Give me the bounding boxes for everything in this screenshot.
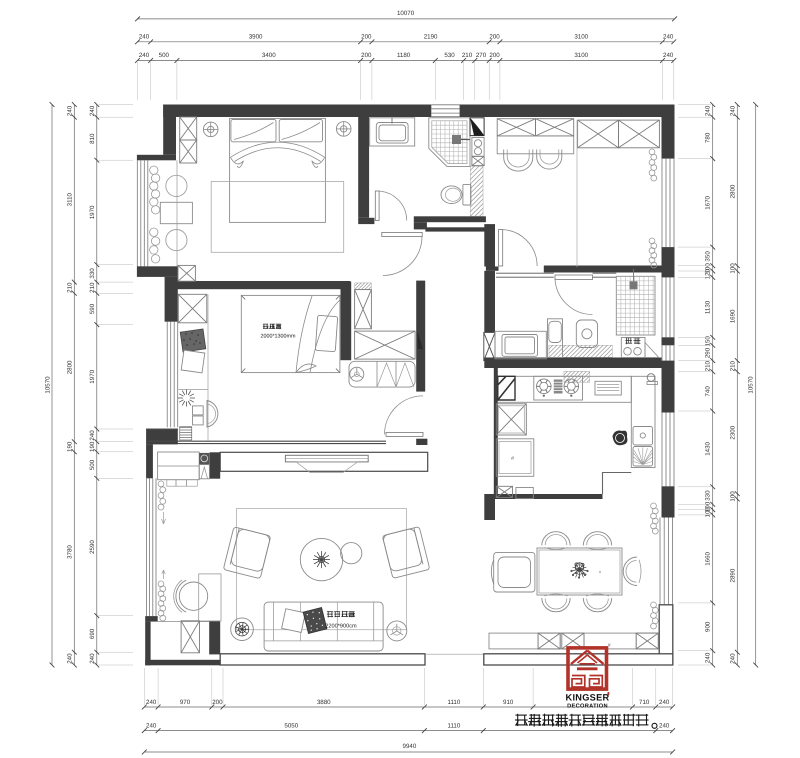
svg-text:330: 330 [89,268,96,279]
svg-text:240: 240 [705,652,712,663]
svg-text:500: 500 [89,459,96,470]
svg-text:1970: 1970 [89,205,96,219]
svg-text:2800: 2800 [66,360,73,374]
svg-text:200: 200 [361,34,372,41]
svg-text:240: 240 [139,34,150,41]
svg-text:240: 240 [146,723,157,730]
svg-text:#: # [608,643,611,649]
svg-text:240: 240 [729,105,736,116]
svg-text:530: 530 [444,52,455,59]
svg-text:3100: 3100 [574,34,588,41]
svg-text:200: 200 [489,34,500,41]
svg-text:190: 190 [66,441,73,452]
svg-text:200: 200 [212,699,223,706]
svg-text:240: 240 [663,52,674,59]
svg-text:3100: 3100 [574,52,588,59]
svg-text:2190: 2190 [424,34,438,41]
svg-text:3900: 3900 [249,34,263,41]
svg-text:1130: 1130 [705,300,712,314]
svg-text:100: 100 [729,491,736,502]
svg-text:10570: 10570 [748,376,755,394]
svg-text:3110: 3110 [66,192,73,206]
svg-text:×: × [599,570,602,576]
svg-text:740: 740 [705,386,712,397]
svg-text:240: 240 [89,430,96,441]
svg-text:290: 290 [705,347,712,358]
svg-text:2590: 2590 [89,540,96,554]
svg-text:240: 240 [139,52,150,59]
svg-text:190: 190 [89,441,96,452]
svg-text:1180: 1180 [397,52,411,59]
svg-text:590: 590 [89,303,96,314]
svg-text:240: 240 [66,105,73,116]
svg-text:100: 100 [729,263,736,274]
svg-text:210: 210 [66,282,73,293]
svg-text:1660: 1660 [705,551,712,565]
svg-text:2300: 2300 [729,425,736,439]
svg-text:240: 240 [89,653,96,664]
svg-text:240: 240 [659,699,670,706]
svg-text:240: 240 [146,699,157,706]
svg-text:240: 240 [663,34,674,41]
svg-text:1110: 1110 [447,699,460,706]
svg-text:3400: 3400 [262,52,276,59]
svg-text:900: 900 [705,621,712,632]
svg-text:10570: 10570 [45,376,52,394]
svg-text:3780: 3780 [66,545,73,559]
svg-text:2890: 2890 [729,568,736,582]
svg-text:1110: 1110 [447,723,460,730]
svg-text:1970: 1970 [89,369,96,383]
svg-text:200: 200 [489,52,500,59]
svg-text:2800: 2800 [729,184,736,198]
svg-text:910: 910 [503,699,514,706]
svg-text:210: 210 [89,282,96,293]
svg-text:5050: 5050 [284,723,298,730]
svg-text:240: 240 [705,105,712,116]
svg-text:1670: 1670 [705,195,712,209]
svg-text:DECORATION: DECORATION [567,704,608,710]
svg-text:240: 240 [729,653,736,664]
svg-text:200: 200 [361,52,372,59]
svg-text:240: 240 [89,105,96,116]
svg-text:270: 270 [476,52,487,59]
svg-text:3880: 3880 [317,699,331,706]
svg-text:240: 240 [659,723,670,730]
svg-text:KINGSER: KINGSER [566,692,610,702]
svg-text:690: 690 [89,628,96,639]
svg-text:500: 500 [159,52,170,59]
svg-text:9940: 9940 [403,743,417,750]
svg-text:970: 970 [180,699,191,706]
svg-text:210: 210 [705,360,712,371]
svg-text:10070: 10070 [397,10,415,17]
svg-text:330: 330 [705,490,712,501]
svg-text:1430: 1430 [705,441,712,455]
svg-text:120: 120 [705,268,712,279]
svg-text:350: 350 [705,251,712,262]
svg-text:210: 210 [462,52,473,59]
svg-text:1690: 1690 [729,309,736,323]
svg-text:780: 780 [705,132,712,143]
svg-text:810: 810 [89,133,96,144]
svg-text:2200*900cm: 2200*900cm [325,624,357,630]
svg-text:240: 240 [66,653,73,664]
svg-text:2000*1300mm: 2000*1300mm [260,334,296,340]
svg-text:100: 100 [705,507,712,518]
svg-text:210: 210 [729,360,736,371]
svg-text:710: 710 [639,699,650,706]
